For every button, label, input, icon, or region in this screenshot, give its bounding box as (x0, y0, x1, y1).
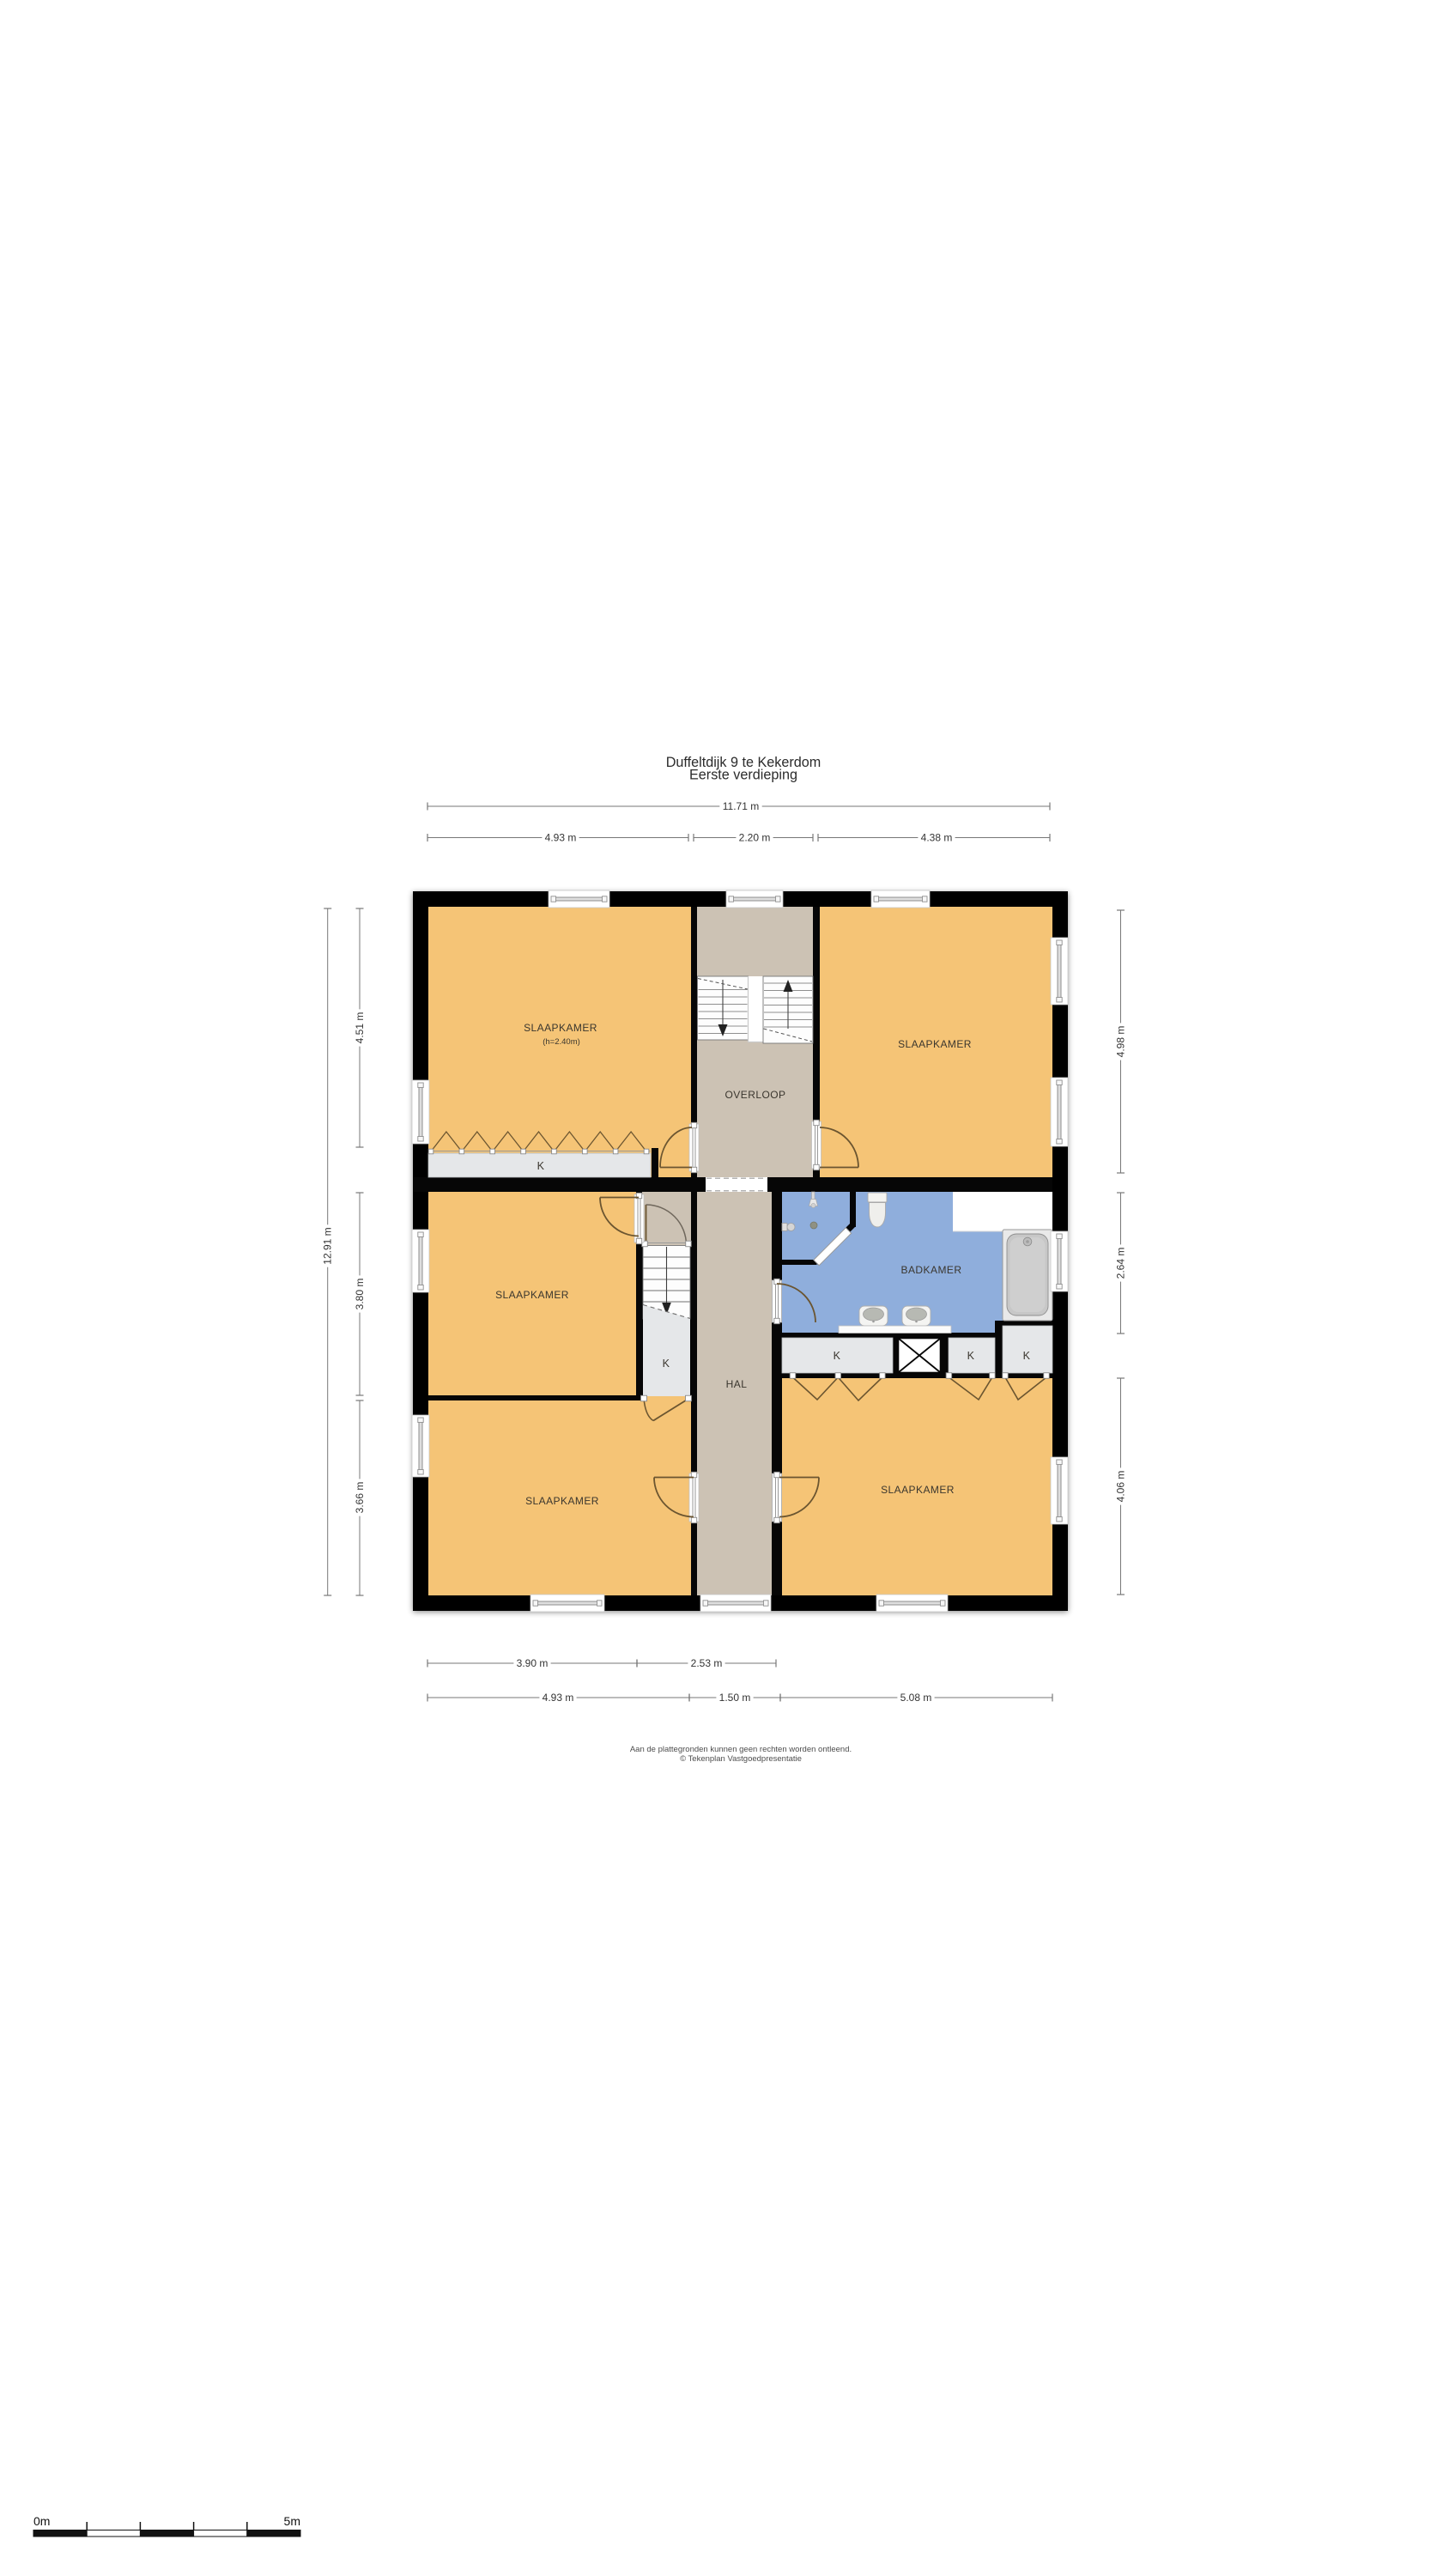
svg-text:HAL: HAL (726, 1378, 748, 1390)
svg-text:0m: 0m (33, 2514, 50, 2528)
svg-text:4.38 m: 4.38 m (921, 831, 953, 843)
svg-text:3.80 m: 3.80 m (354, 1279, 366, 1310)
svg-text:© Tekenplan Vastgoedpresentati: © Tekenplan Vastgoedpresentatie (680, 1754, 802, 1764)
svg-text:SLAAPKAMER: SLAAPKAMER (881, 1484, 955, 1496)
svg-text:2.64 m: 2.64 m (1114, 1248, 1126, 1279)
svg-text:Aan de plattegronden kunnen ge: Aan de plattegronden kunnen geen rechten… (630, 1745, 852, 1754)
svg-text:SLAAPKAMER: SLAAPKAMER (525, 1495, 599, 1507)
svg-text:4.51 m: 4.51 m (354, 1012, 366, 1044)
svg-text:1.50 m: 1.50 m (719, 1692, 751, 1704)
svg-text:4.93 m: 4.93 m (545, 831, 577, 843)
svg-text:SLAAPKAMER: SLAAPKAMER (524, 1022, 597, 1034)
svg-text:5.08 m: 5.08 m (900, 1692, 932, 1704)
svg-text:K: K (967, 1350, 975, 1362)
svg-text:K: K (834, 1350, 841, 1362)
svg-text:K: K (663, 1358, 670, 1370)
svg-text:OVERLOOP: OVERLOOP (725, 1089, 786, 1101)
svg-text:4.98 m: 4.98 m (1114, 1026, 1126, 1058)
svg-text:5m: 5m (284, 2514, 300, 2528)
svg-text:3.90 m: 3.90 m (517, 1657, 549, 1669)
svg-text:2.53 m: 2.53 m (691, 1657, 723, 1669)
svg-text:SLAAPKAMER: SLAAPKAMER (495, 1289, 569, 1301)
svg-text:4.06 m: 4.06 m (1114, 1471, 1126, 1503)
svg-text:12.91 m: 12.91 m (322, 1227, 334, 1264)
svg-text:Eerste verdieping: Eerste verdieping (689, 768, 797, 783)
svg-text:BADKAMER: BADKAMER (901, 1264, 962, 1276)
svg-text:K: K (1023, 1350, 1031, 1362)
svg-text:4.93 m: 4.93 m (543, 1692, 574, 1704)
svg-text:SLAAPKAMER: SLAAPKAMER (898, 1038, 972, 1050)
svg-text:11.71 m: 11.71 m (723, 800, 759, 812)
svg-text:K: K (537, 1160, 545, 1172)
svg-text:3.66 m: 3.66 m (354, 1482, 366, 1514)
svg-text:(h=2.40m): (h=2.40m) (543, 1037, 580, 1047)
svg-text:2.20 m: 2.20 m (739, 831, 771, 843)
